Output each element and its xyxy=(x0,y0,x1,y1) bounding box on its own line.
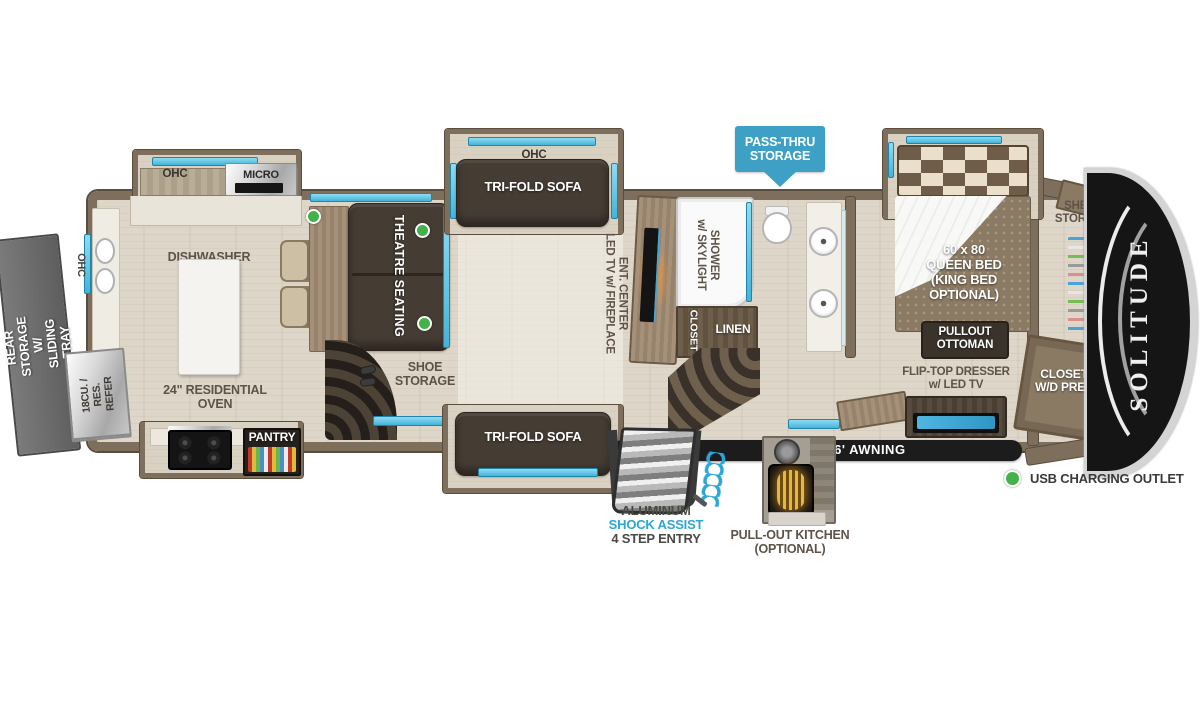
entry-label-line3: 4 STEP ENTRY xyxy=(597,532,715,546)
residential-oven-label: 24" RESIDENTIAL OVEN xyxy=(145,383,285,413)
rear-sink-bowl-2 xyxy=(95,268,115,294)
vanity-sink-2 xyxy=(809,289,838,318)
sofa-top-window xyxy=(468,137,596,146)
passthru-banner: PASS-THRU STORAGE xyxy=(735,126,825,172)
usb-legend-dot xyxy=(1004,470,1021,487)
stove-cooktop xyxy=(168,430,232,470)
entry-steps xyxy=(611,427,697,514)
bed-window-left xyxy=(888,142,894,178)
bed-window-top xyxy=(906,136,1002,144)
console-table xyxy=(309,206,349,352)
bottom-window-living xyxy=(373,416,445,426)
pantry-items xyxy=(248,447,296,472)
usb-legend-label: USB CHARGING OUTLET xyxy=(1030,472,1200,488)
linen-label: LINEN xyxy=(710,323,756,338)
shower-label: SHOWER w/ SKYLIGHT xyxy=(694,200,720,310)
pullout-kitchen-grate xyxy=(777,470,805,510)
front-cap: SOLITUDE xyxy=(1084,168,1198,478)
trifold-sofa-top-label: TRI-FOLD SOFA xyxy=(466,180,600,195)
ohc-kitchen-label: OHC xyxy=(150,168,200,181)
microwave-screen xyxy=(235,183,283,193)
bed-headboard xyxy=(897,145,1029,197)
wall-bath-bedroom xyxy=(846,197,855,357)
vanity-sink-1 xyxy=(809,227,838,256)
kitchen-island xyxy=(178,259,240,375)
ohc-rear-label: OHC xyxy=(73,243,87,287)
refrigerator-box: 18CU. / RES. REFER xyxy=(64,348,132,443)
rear-storage-box: REAR STORAGE W/ SLIDING TRAY xyxy=(0,233,81,456)
rear-storage-label: REAR STORAGE W/ SLIDING TRAY xyxy=(0,311,76,378)
entry-label-line1: ALUMINUM xyxy=(597,504,715,518)
usb-outlet-dot-1 xyxy=(306,209,321,224)
passthru-banner-label: PASS-THRU STORAGE xyxy=(745,135,815,163)
shoe-storage-label: SHOE STORAGE xyxy=(393,360,457,390)
brand-logo: SOLITUDE xyxy=(1126,208,1156,438)
pullout-kitchen-burner xyxy=(774,439,800,465)
pullout-ottoman-label: PULLOUT OTTOMAN xyxy=(921,326,1009,354)
bottom-window-entry xyxy=(788,419,840,429)
sofa-bottom-window xyxy=(478,468,598,477)
usb-outlet-dot-2 xyxy=(415,223,430,238)
dresser-tv-screen xyxy=(917,416,995,429)
shower-glass-edge xyxy=(746,202,752,302)
toilet-bowl xyxy=(762,212,792,244)
entry-label-line2: SHOCK ASSIST xyxy=(597,518,715,532)
vanity-counter xyxy=(806,202,842,352)
living-top-window xyxy=(310,193,432,202)
theatre-seating-label: THEATRE SEATING xyxy=(390,206,406,346)
usb-outlet-dot-3 xyxy=(417,316,432,331)
floorplan-canvas: REAR STORAGE W/ SLIDING TRAY OHC MICRO O… xyxy=(0,0,1200,703)
flip-top-dresser-label: FLIP-TOP DRESSER w/ LED TV xyxy=(898,366,1014,394)
pullout-kitchen-pad xyxy=(768,512,826,526)
ent-center-label: ENT. CENTER LED TV w/ FIREPLACE xyxy=(602,221,629,367)
vanity-mirror xyxy=(841,210,846,346)
pantry-label: PANTRY xyxy=(243,431,301,445)
trifold-sofa-bottom-label: TRI-FOLD SOFA xyxy=(465,430,601,445)
sofa-top-window-right xyxy=(611,163,618,219)
rear-sink-bowl-1 xyxy=(95,238,115,264)
passthru-banner-tail xyxy=(763,171,797,187)
closet-label: CLOSET xyxy=(686,308,699,354)
aisle-floor xyxy=(458,232,623,408)
pullout-kitchen-label: PULL-OUT KITCHEN (OPTIONAL) xyxy=(730,528,850,558)
queen-bed-label: 60 x 80 QUEEN BED (KING BED OPTIONAL) xyxy=(905,243,1023,309)
kitchen-counter-top xyxy=(130,196,302,226)
micro-label: MICRO xyxy=(233,169,289,181)
refer-label: 18CU. / RES. REFER xyxy=(78,366,118,425)
